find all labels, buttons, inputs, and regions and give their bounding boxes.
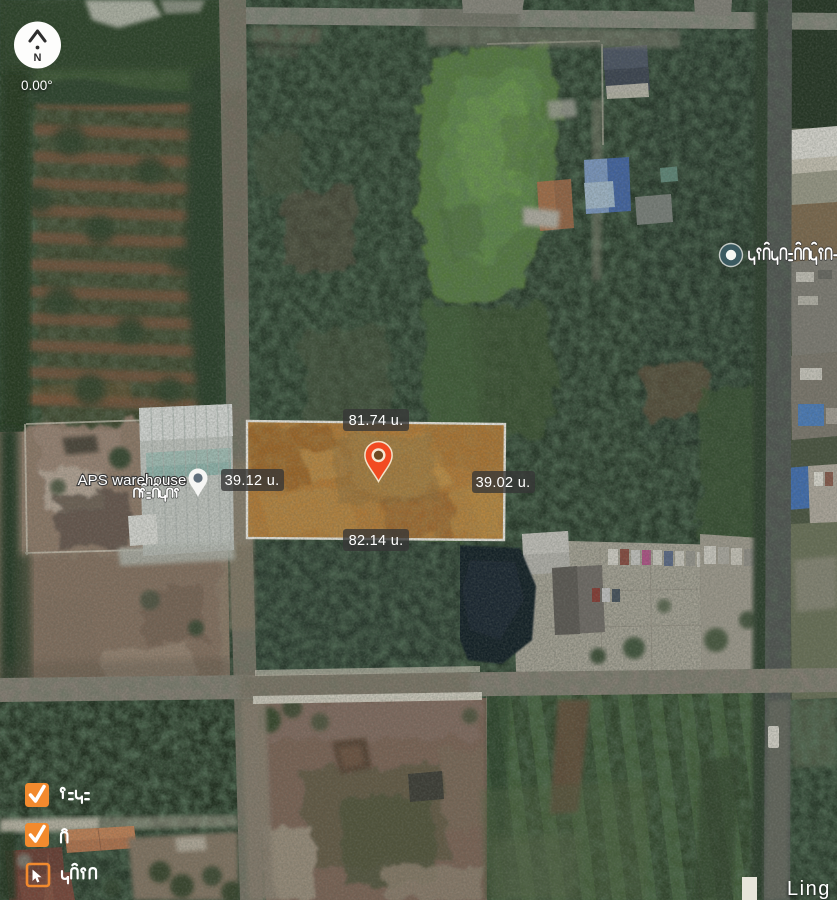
svg-text:N: N <box>34 52 42 64</box>
svg-text:0.00°: 0.00° <box>21 78 53 93</box>
svg-text:APS warehouse: APS warehouse <box>78 472 187 489</box>
svg-text:39.02 u.: 39.02 u. <box>476 475 531 491</box>
svg-text:82.14 u.: 82.14 u. <box>349 533 404 549</box>
svg-text:81.74 u.: 81.74 u. <box>349 413 404 429</box>
svg-text:Ling: Ling <box>787 878 831 900</box>
svg-text:39.12 u.: 39.12 u. <box>225 473 280 489</box>
